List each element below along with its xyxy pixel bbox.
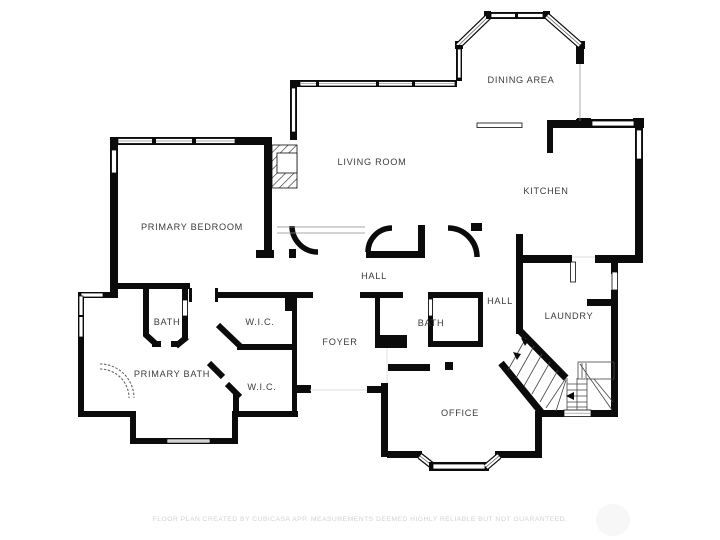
room-label-hall-main: HALL bbox=[361, 271, 387, 281]
room-label-hall-rear: HALL bbox=[487, 296, 513, 306]
room-label-wic-lower: W.I.C. bbox=[247, 382, 276, 392]
room-label-bath-hall: BATH bbox=[418, 318, 445, 328]
curved-shower bbox=[100, 364, 134, 398]
room-label-foyer: FOYER bbox=[322, 337, 357, 347]
room-labels: DINING AREA LIVING ROOM KITCHEN PRIMARY … bbox=[134, 75, 593, 418]
room-label-primary-bath: PRIMARY BATH bbox=[134, 369, 210, 379]
footer-disclaimer: FLOOR PLAN CREATED BY CUBICASA APP. MEAS… bbox=[153, 516, 568, 523]
room-label-dining-area: DINING AREA bbox=[488, 75, 555, 85]
fireplace bbox=[272, 145, 297, 188]
watermark-logo bbox=[596, 504, 630, 536]
room-label-kitchen: KITCHEN bbox=[523, 186, 568, 196]
room-label-wic-upper: W.I.C. bbox=[245, 317, 274, 327]
room-label-living-room: LIVING ROOM bbox=[338, 157, 407, 167]
room-label-laundry: LAUNDRY bbox=[545, 311, 594, 321]
room-label-bath-suite: BATH bbox=[154, 317, 181, 327]
floor-plan-canvas: DINING AREA LIVING ROOM KITCHEN PRIMARY … bbox=[0, 0, 720, 540]
room-label-primary-bedroom: PRIMARY BEDROOM bbox=[141, 222, 243, 232]
walls bbox=[78, 11, 644, 458]
room-label-office: OFFICE bbox=[441, 408, 479, 418]
